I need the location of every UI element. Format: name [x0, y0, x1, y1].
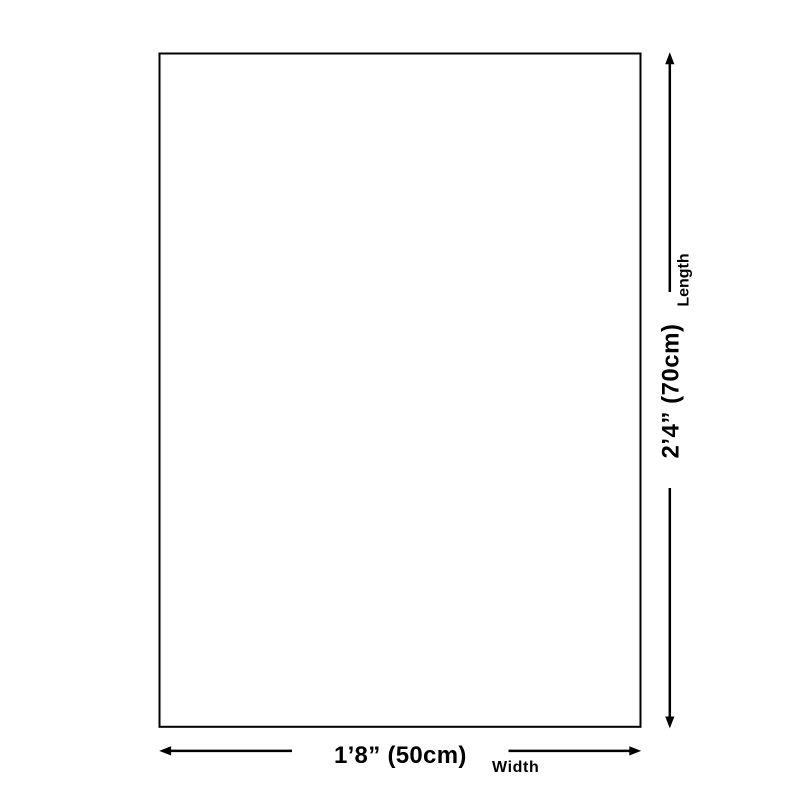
svg-text:Width: Width [492, 759, 539, 776]
svg-text:Length: Length [676, 253, 693, 306]
svg-text:2’4” (70cm): 2’4” (70cm) [658, 324, 685, 459]
svg-text:1’8” (50cm): 1’8” (50cm) [334, 742, 467, 769]
